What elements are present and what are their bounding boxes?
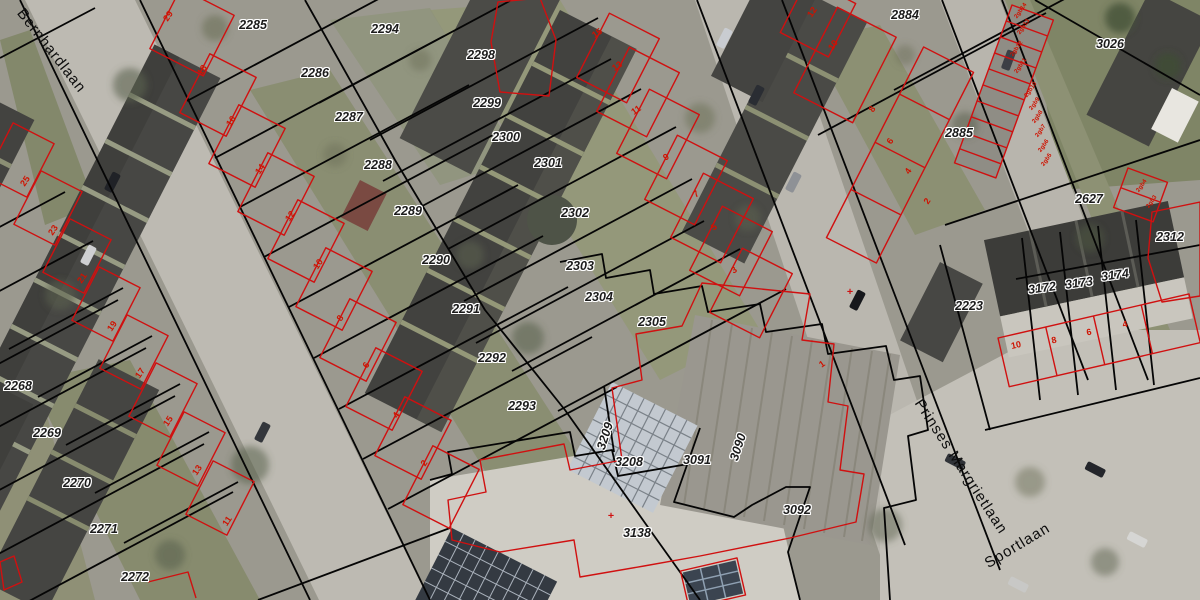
map-viewport[interactable]: BernhardlaanPrinses MargrietlaanSportlaa… — [0, 0, 1200, 600]
aerial-imagery — [0, 0, 1200, 600]
